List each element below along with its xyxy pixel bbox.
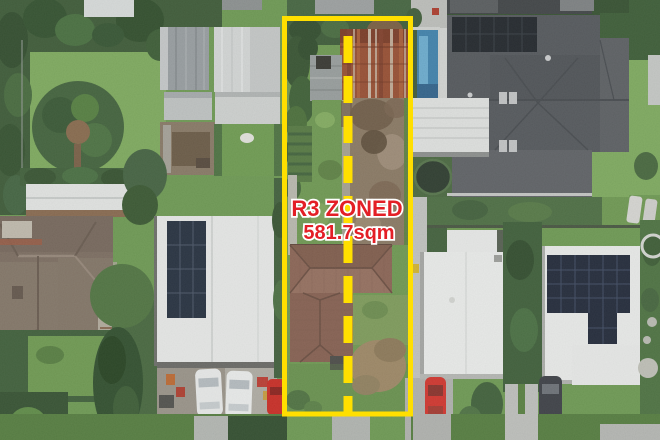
svg-text:R3 ZONED: R3 ZONED <box>291 196 402 221</box>
svg-text:581.7sqm: 581.7sqm <box>303 222 394 244</box>
